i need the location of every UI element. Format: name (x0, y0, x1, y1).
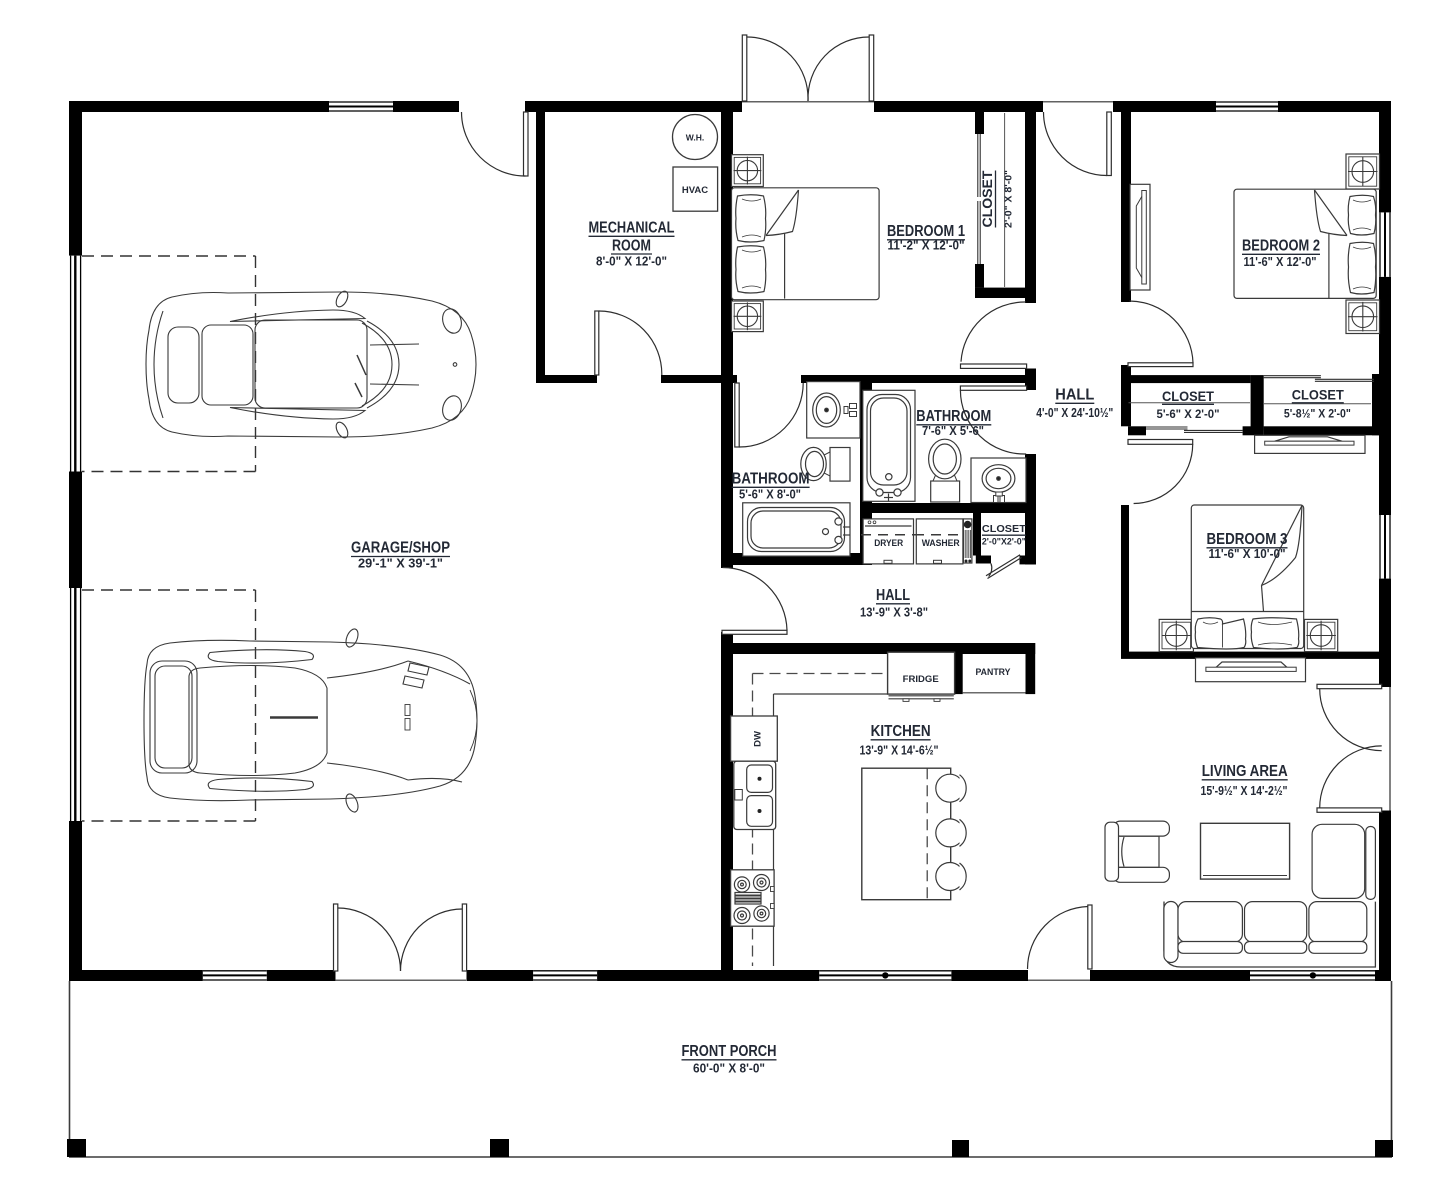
svg-text:W.H.: W.H. (686, 133, 704, 143)
svg-text:BEDROOM 3: BEDROOM 3 (1207, 531, 1288, 548)
svg-text:7'-6" X 5'-6": 7'-6" X 5'-6" (922, 424, 984, 438)
svg-text:WASHER: WASHER (922, 538, 960, 548)
svg-text:11'-6" X 10'-0": 11'-6" X 10'-0" (1209, 547, 1286, 561)
svg-text:HALL: HALL (876, 587, 910, 604)
svg-text:CLOSET: CLOSET (982, 523, 1027, 535)
svg-text:KITCHEN: KITCHEN (871, 723, 931, 740)
svg-text:CLOSET: CLOSET (979, 170, 995, 227)
svg-text:13'-9" X 3'-8": 13'-9" X 3'-8" (860, 606, 928, 620)
svg-text:15'-9½" X 14'-2½": 15'-9½" X 14'-2½" (1201, 784, 1288, 798)
svg-text:LIVING AREA: LIVING AREA (1202, 763, 1288, 780)
svg-text:DW: DW (753, 731, 764, 747)
svg-text:13'-9" X 14'-6½": 13'-9" X 14'-6½" (860, 744, 939, 758)
svg-text:60'-0" X 8'-0": 60'-0" X 8'-0" (693, 1062, 765, 1076)
svg-text:CLOSET: CLOSET (1162, 388, 1214, 404)
svg-text:2'-0"X2'-0": 2'-0"X2'-0" (982, 537, 1026, 547)
svg-text:MECHANICAL: MECHANICAL (589, 220, 675, 237)
svg-text:11'-6" X 12'-0": 11'-6" X 12'-0" (1244, 255, 1317, 269)
svg-text:GARAGE/SHOP: GARAGE/SHOP (351, 540, 450, 557)
svg-text:HVAC: HVAC (682, 185, 708, 196)
svg-text:5'-6" X 8'-0": 5'-6" X 8'-0" (739, 488, 801, 502)
svg-text:11'-2" X 12'-0": 11'-2" X 12'-0" (888, 239, 965, 253)
svg-text:4'-0" X 24'-10½": 4'-0" X 24'-10½" (1036, 406, 1113, 420)
svg-text:5'-6" X 2'-0": 5'-6" X 2'-0" (1157, 407, 1220, 421)
svg-text:BATHROOM: BATHROOM (916, 408, 991, 425)
svg-text:ROOM: ROOM (612, 238, 651, 255)
svg-text:29'-1" X 39'-1": 29'-1" X 39'-1" (358, 557, 443, 571)
svg-text:2'-0" X 8'-0": 2'-0" X 8'-0" (1003, 170, 1015, 228)
svg-text:BATHROOM: BATHROOM (732, 471, 810, 488)
svg-text:BEDROOM 2: BEDROOM 2 (1242, 238, 1320, 255)
svg-text:FRIDGE: FRIDGE (903, 674, 939, 685)
svg-text:8'-0" X 12'-0": 8'-0" X 12'-0" (596, 255, 667, 269)
svg-text:5'-8½" X 2'-0": 5'-8½" X 2'-0" (1284, 406, 1351, 420)
svg-text:PANTRY: PANTRY (976, 667, 1012, 678)
svg-text:DRYER: DRYER (874, 538, 903, 548)
svg-text:HALL: HALL (1055, 387, 1094, 404)
svg-text:FRONT PORCH: FRONT PORCH (682, 1043, 777, 1060)
svg-text:CLOSET: CLOSET (1292, 387, 1344, 403)
